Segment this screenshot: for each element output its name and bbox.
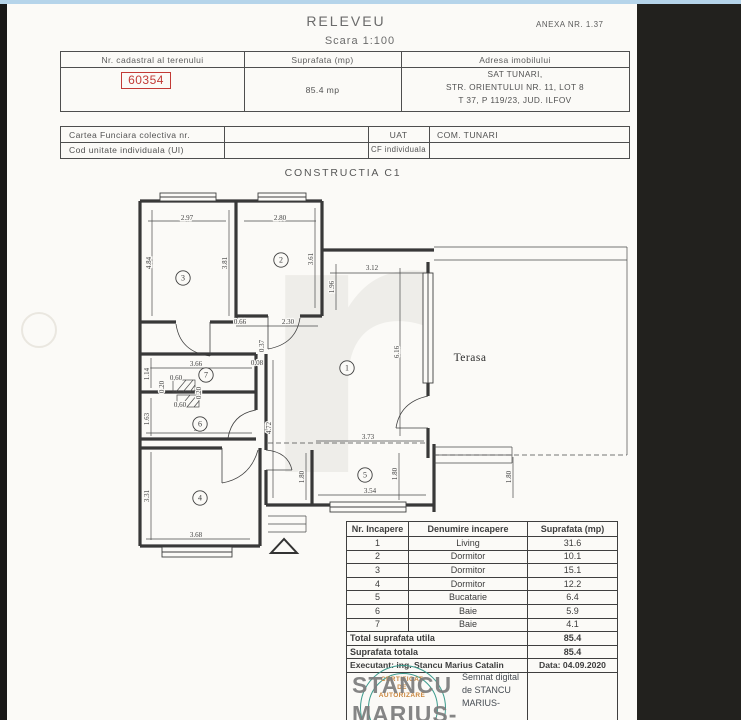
room-table-cell: Baie bbox=[409, 618, 528, 632]
room-table-cell: 1 bbox=[347, 537, 409, 551]
surface-value: 85.4 mp bbox=[244, 85, 401, 95]
cadastral-number: 60354 bbox=[121, 72, 171, 89]
signatory-name-line2: MARIUS- bbox=[352, 701, 457, 720]
room-table-cell: 5.9 bbox=[528, 604, 618, 618]
room-table-row: 3Dormitor15.1 bbox=[347, 564, 618, 578]
room-table-cell: 3 bbox=[347, 564, 409, 578]
cf-row1-label: Cartea Funciara colectiva nr. bbox=[69, 130, 190, 140]
cf-table-divider-3 bbox=[429, 127, 430, 158]
room-table-cell: Dormitor bbox=[409, 564, 528, 578]
room-table-cell: 4 bbox=[347, 577, 409, 591]
room-table-cell: 31.6 bbox=[528, 537, 618, 551]
total-value: 85.4 bbox=[528, 645, 618, 659]
room-table-cell: 6 bbox=[347, 604, 409, 618]
room-table-head: Nr. Incapere Denumire incapere Suprafata… bbox=[347, 522, 618, 537]
cadastral-table-header-line bbox=[61, 67, 629, 68]
cadastral-col-header: Nr. cadastral al terenului bbox=[61, 55, 244, 65]
room-table-row: 2Dormitor10.1 bbox=[347, 550, 618, 564]
room-table-cell: 10.1 bbox=[528, 550, 618, 564]
cf-individuala-key: CF individuala bbox=[368, 145, 429, 154]
room-table-cell: 2 bbox=[347, 550, 409, 564]
address-col-header: Adresa imobilului bbox=[401, 55, 629, 65]
room-table-cell: 15.1 bbox=[528, 564, 618, 578]
room-table-row: 4Dormitor12.2 bbox=[347, 577, 618, 591]
room-table-cell: Baie bbox=[409, 604, 528, 618]
scanned-document-page: r 2.972.804.843.813.610.662.303.121.966.… bbox=[0, 0, 741, 720]
room-table-cell: 12.2 bbox=[528, 577, 618, 591]
scale-label: Scara 1:100 bbox=[310, 35, 410, 47]
address-line: T 37, P 119/23, JUD. ILFOV bbox=[401, 95, 629, 105]
scan-right-strip bbox=[637, 4, 741, 720]
total-label: Suprafata totala bbox=[347, 645, 528, 659]
room-table-col2-header: Denumire incapere bbox=[409, 522, 528, 537]
total-utila-label: Total suprafata utila bbox=[347, 632, 528, 646]
room-table-col1-header: Nr. Incapere bbox=[347, 522, 409, 537]
room-table-row: 7Baie4.1 bbox=[347, 618, 618, 632]
room-table-row: 1Living31.6 bbox=[347, 537, 618, 551]
room-table-cell: Bucatarie bbox=[409, 591, 528, 605]
cf-table: Cartea Funciara colectiva nr. UAT COM. T… bbox=[60, 126, 630, 159]
annex-label: ANEXA NR. 1.37 bbox=[536, 20, 603, 29]
room-table-body: 1Living31.62Dormitor10.13Dormitor15.14Do… bbox=[347, 537, 618, 632]
construction-title: CONSTRUCTIA C1 bbox=[268, 167, 418, 179]
room-table-cell: Living bbox=[409, 537, 528, 551]
room-table-cell: 5 bbox=[347, 591, 409, 605]
address-line: SAT TUNARI, bbox=[401, 69, 629, 79]
cf-table-divider-1 bbox=[224, 127, 225, 158]
room-table-cell: 6.4 bbox=[528, 591, 618, 605]
total-utila-value: 85.4 bbox=[528, 632, 618, 646]
uat-key: UAT bbox=[368, 130, 429, 140]
address-line: STR. ORIENTULUI NR. 11, LOT 8 bbox=[401, 82, 629, 92]
scan-left-strip bbox=[0, 4, 7, 720]
cadastral-table: Nr. cadastral al terenului Suprafata (mp… bbox=[60, 51, 630, 112]
cf-row2-label: Cod unitate individuala (UI) bbox=[69, 145, 184, 155]
scan-top-strip bbox=[0, 0, 741, 4]
digital-signature-block: CERTIFICAT DE AUTORIZARE STANCU MARIUS- … bbox=[350, 664, 616, 720]
page-title: RELEVEU bbox=[296, 13, 396, 29]
room-table-cell: 4.1 bbox=[528, 618, 618, 632]
room-table-row: 5Bucatarie6.4 bbox=[347, 591, 618, 605]
digital-line: MARIUS- bbox=[462, 697, 519, 710]
room-table-col3-header: Suprafata (mp) bbox=[528, 522, 618, 537]
room-table-cell: Dormitor bbox=[409, 550, 528, 564]
watermark-glyph: r bbox=[255, 168, 433, 528]
room-table-cell: 7 bbox=[347, 618, 409, 632]
digital-line: de STANCU bbox=[462, 684, 519, 697]
cf-table-mid-line bbox=[61, 142, 629, 143]
surface-col-header: Suprafata (mp) bbox=[244, 55, 401, 65]
digital-signature-text: Semnat digital de STANCU MARIUS- bbox=[462, 671, 519, 710]
room-table-row: 6Baie5.9 bbox=[347, 604, 618, 618]
signatory-name-line1: STANCU bbox=[352, 672, 452, 699]
uat-value: COM. TUNARI bbox=[437, 130, 498, 140]
digital-line: Semnat digital bbox=[462, 671, 519, 684]
room-table-cell: Dormitor bbox=[409, 577, 528, 591]
